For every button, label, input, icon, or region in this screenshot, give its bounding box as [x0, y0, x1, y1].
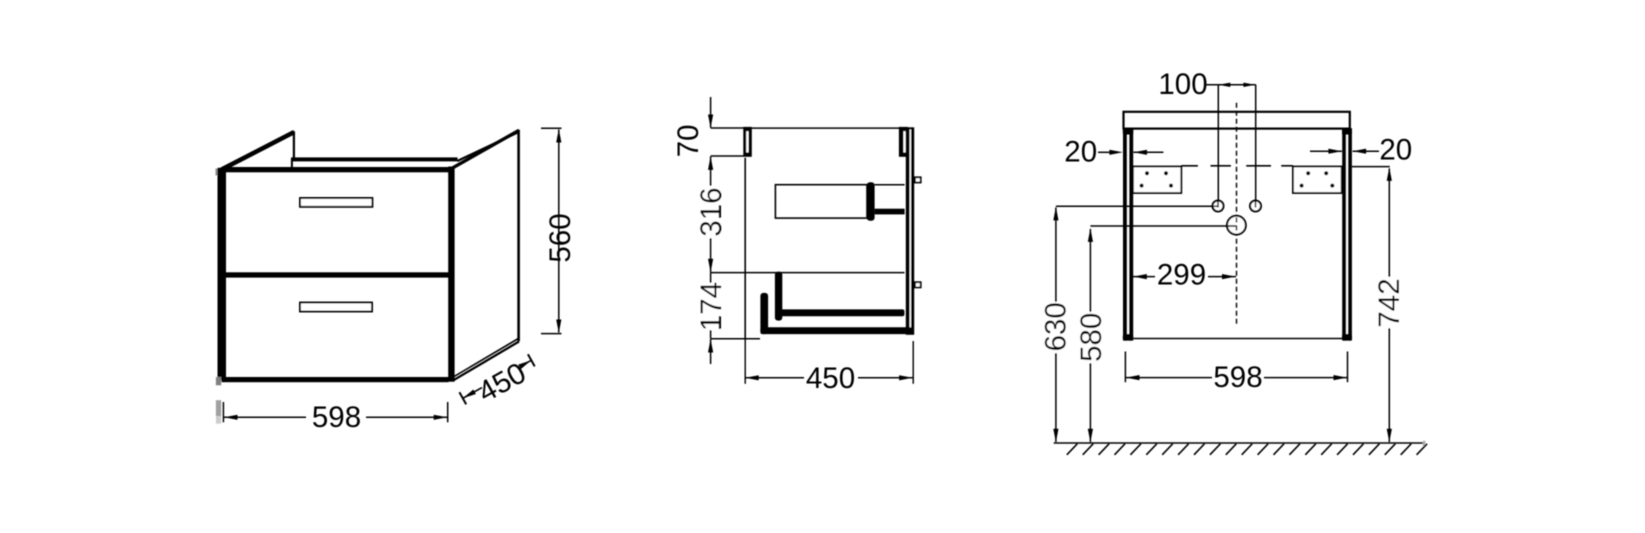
svg-text:450: 450: [806, 362, 855, 395]
svg-text:100: 100: [1158, 68, 1207, 101]
svg-text:20: 20: [1064, 136, 1097, 169]
svg-text:174: 174: [695, 282, 728, 331]
svg-text:70: 70: [672, 124, 705, 157]
svg-text:598: 598: [312, 401, 361, 434]
svg-text:316: 316: [695, 187, 728, 236]
svg-text:742: 742: [1373, 278, 1406, 327]
svg-text:560: 560: [544, 213, 577, 262]
svg-text:580: 580: [1075, 313, 1108, 362]
svg-text:598: 598: [1213, 361, 1262, 394]
svg-text:299: 299: [1157, 259, 1206, 292]
svg-text:630: 630: [1039, 302, 1072, 351]
svg-text:20: 20: [1379, 133, 1412, 166]
